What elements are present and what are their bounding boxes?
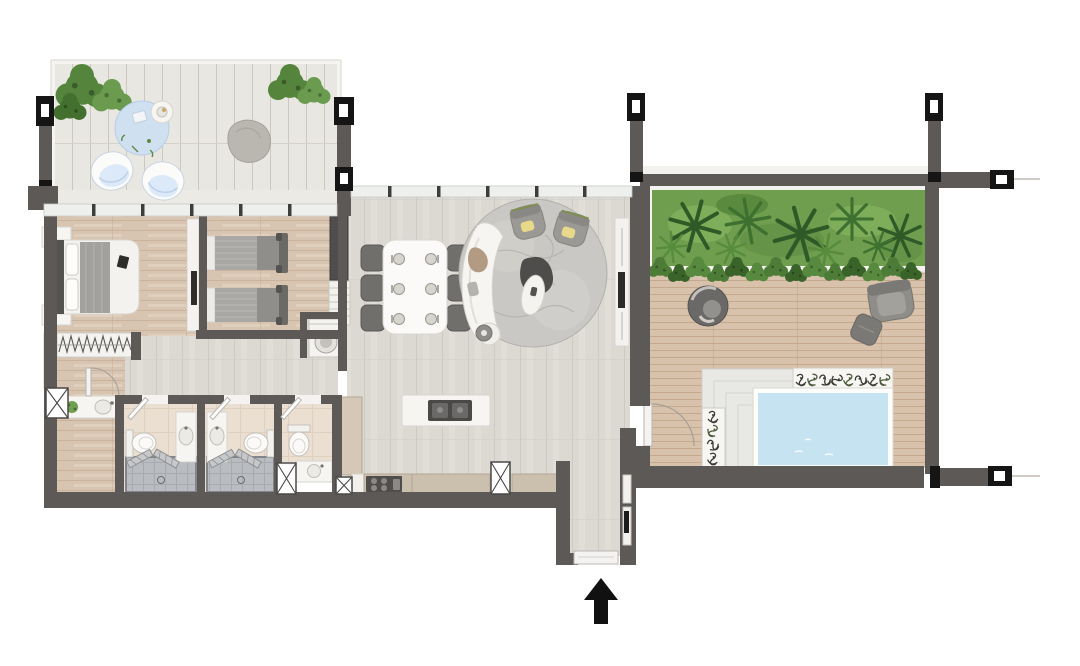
pillow <box>66 279 78 310</box>
wall-living-west <box>338 195 347 371</box>
wall-stub-right-upper <box>938 172 990 188</box>
floor-plan-canvas <box>0 0 1080 666</box>
deck-daybed-pouf <box>228 120 270 162</box>
vanity-with-sink <box>62 396 120 418</box>
wall-stub-right-lower <box>938 468 988 486</box>
wall-bath-west <box>115 395 124 508</box>
tv-media-panel <box>615 218 629 346</box>
pillow <box>66 244 78 275</box>
wall-living-east <box>630 186 650 406</box>
twin-bed <box>206 233 288 273</box>
shaft-x-icon <box>46 388 68 418</box>
wall-bath-partition1 <box>197 395 205 500</box>
wall-terrace-south <box>628 466 924 488</box>
kitchen-island <box>402 395 490 426</box>
sink-icon <box>210 427 224 445</box>
deck-side-table <box>151 101 173 123</box>
wardrobe-hanging-clothes <box>57 333 133 357</box>
wall-cut-icon <box>988 466 1012 486</box>
counter-run <box>512 474 557 493</box>
wall-cut-icon <box>334 97 354 125</box>
room-entry-floor <box>568 428 622 556</box>
entry-wall-cabinet <box>623 475 631 503</box>
terrace-armchair <box>866 279 915 323</box>
wall-cut-icon <box>925 93 943 121</box>
dressing-door-leaf <box>86 368 91 396</box>
counter-cabinet-white <box>352 474 364 493</box>
plunge-pool <box>753 388 893 470</box>
shaft-x-icon <box>491 462 510 494</box>
sink-icon <box>179 427 193 445</box>
range-stove <box>364 474 412 493</box>
terrace-door-leaf <box>644 404 652 446</box>
shaft-x-icon <box>277 463 296 494</box>
wall-west <box>44 210 57 506</box>
terrace-north-white-band <box>640 166 938 174</box>
planter-box-vertical <box>702 408 725 472</box>
dining-chair <box>361 245 385 271</box>
wall-stub-deck-west <box>39 126 52 184</box>
wall-closet-east <box>131 332 141 360</box>
roof-deck-lower-border <box>55 190 337 204</box>
wall-stub-terrace-ne <box>928 118 941 180</box>
tv-icon <box>191 271 197 305</box>
wall-laundry-west <box>300 312 307 358</box>
double-bed <box>57 240 139 314</box>
dining-chair <box>361 305 385 331</box>
wall-bedroom2-south <box>196 330 344 339</box>
bedroom-window-band <box>44 204 337 216</box>
dining-set <box>361 240 471 334</box>
sink-icon <box>95 400 111 414</box>
palm-icon <box>832 199 873 240</box>
vanity-with-sink <box>296 461 332 482</box>
living-window-band <box>351 186 632 197</box>
dining-chair <box>361 275 385 301</box>
wall-terrace-north <box>640 174 938 186</box>
tv-icon <box>618 272 625 308</box>
twin-bed <box>206 285 288 325</box>
toilet <box>288 425 310 456</box>
tall-cabinet <box>341 397 362 475</box>
wall-terrace-east <box>925 174 939 474</box>
sink-icon <box>308 465 321 478</box>
grey-throw <box>80 242 110 313</box>
counter-run <box>412 474 490 493</box>
wall-cut-icon <box>990 170 1014 189</box>
wall-entry-west <box>556 461 570 559</box>
wall-cut-icon <box>627 93 645 121</box>
wall-cut-icon <box>335 167 353 191</box>
wall-cut-icon <box>36 96 54 126</box>
vanity-with-sink <box>176 412 196 462</box>
shaft-x-icon <box>336 477 352 494</box>
entry-arrow-icon <box>584 578 618 624</box>
terrace-swivel-chair <box>688 286 728 326</box>
wall-bedroom-partition <box>199 216 207 332</box>
floor-plan-drawing <box>0 0 1080 666</box>
wall-stub-terrace-nw <box>630 118 643 180</box>
